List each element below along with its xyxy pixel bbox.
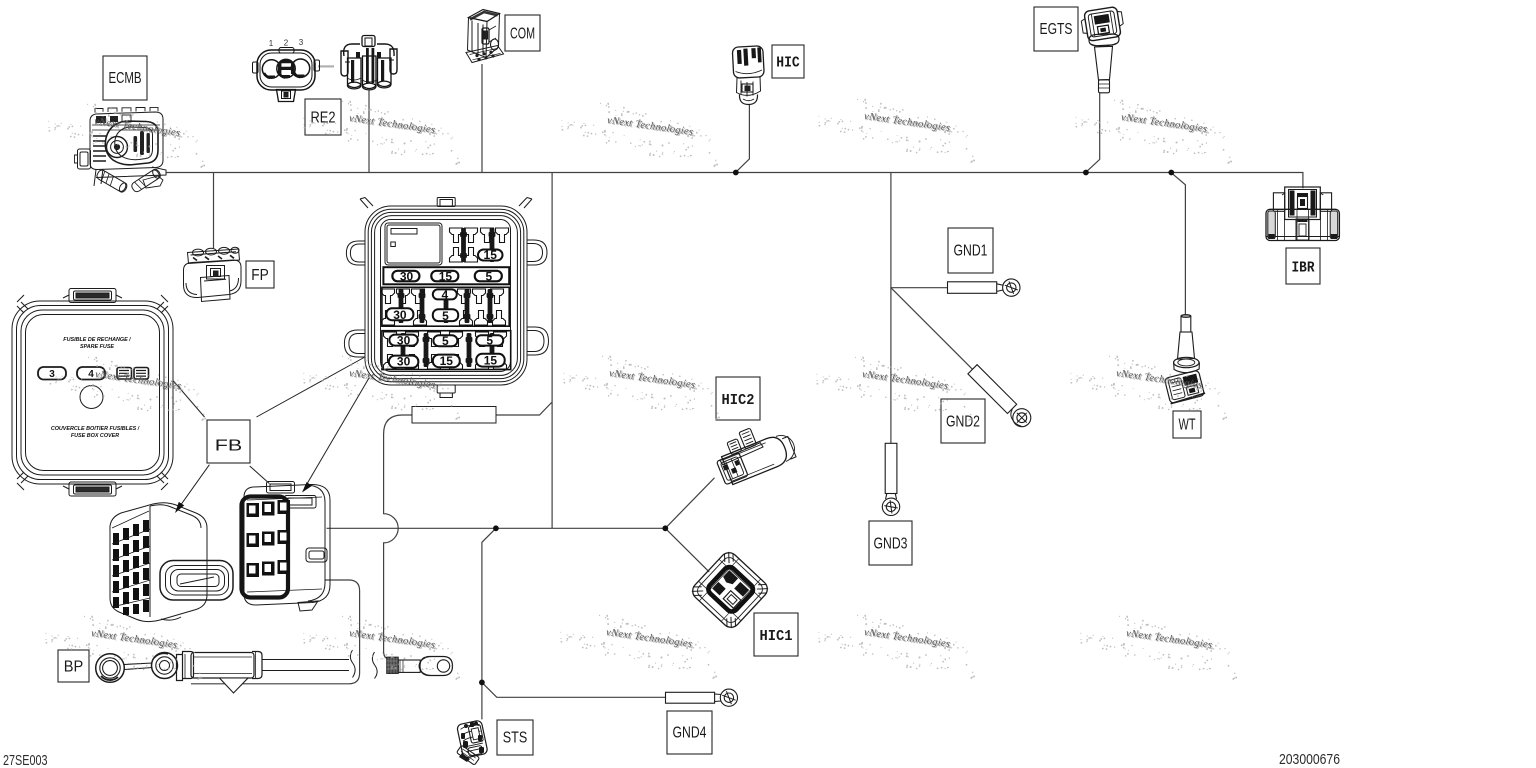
svg-text:30: 30: [397, 355, 411, 369]
svg-text:HIC2: HIC2: [722, 392, 755, 409]
svg-text:5: 5: [486, 333, 493, 347]
svg-text:30: 30: [393, 308, 407, 322]
svg-text:15: 15: [484, 354, 498, 368]
svg-text:4: 4: [88, 369, 94, 380]
svg-text:15: 15: [439, 270, 453, 284]
svg-text:GND2: GND2: [946, 414, 980, 431]
svg-text:HIC: HIC: [776, 55, 800, 72]
svg-text:IBR: IBR: [1292, 260, 1315, 277]
svg-text:ECMB: ECMB: [109, 70, 142, 87]
svg-text:BP: BP: [64, 659, 84, 676]
svg-text:5: 5: [442, 334, 449, 348]
svg-text:27SE003: 27SE003: [3, 752, 48, 768]
svg-text:30: 30: [400, 270, 414, 284]
svg-text:RE2: RE2: [311, 110, 336, 127]
svg-text:EGTS: EGTS: [1040, 21, 1073, 38]
svg-text:GND4: GND4: [673, 725, 707, 742]
svg-text:FUSIBLE DE RECHANGE /: FUSIBLE DE RECHANGE /: [63, 337, 131, 343]
svg-text:2: 2: [284, 38, 289, 47]
svg-text:STS: STS: [503, 730, 528, 747]
svg-text:COM: COM: [510, 26, 535, 43]
svg-text:COUVERCLE BOITIER FUSIBLES /: COUVERCLE BOITIER FUSIBLES /: [51, 426, 140, 432]
svg-text:1: 1: [269, 39, 274, 48]
svg-text:FP: FP: [251, 267, 269, 284]
svg-text:30: 30: [397, 333, 411, 347]
svg-text:GND3: GND3: [874, 536, 908, 553]
svg-text:5: 5: [442, 309, 449, 323]
svg-text:4: 4: [441, 288, 448, 302]
svg-text:FB: FB: [215, 438, 243, 455]
svg-text:15: 15: [484, 248, 498, 262]
svg-text:FUSE BOX COVER: FUSE BOX COVER: [71, 433, 119, 439]
svg-text:15: 15: [440, 354, 454, 368]
svg-text:5: 5: [486, 270, 493, 284]
svg-text:SPARE FUSE: SPARE FUSE: [80, 344, 114, 350]
svg-text:203000676: 203000676: [1279, 751, 1340, 768]
svg-text:3: 3: [299, 38, 304, 47]
svg-text:GND1: GND1: [954, 243, 988, 260]
svg-text:HIC1: HIC1: [760, 628, 793, 645]
svg-text:WT: WT: [1179, 417, 1196, 434]
